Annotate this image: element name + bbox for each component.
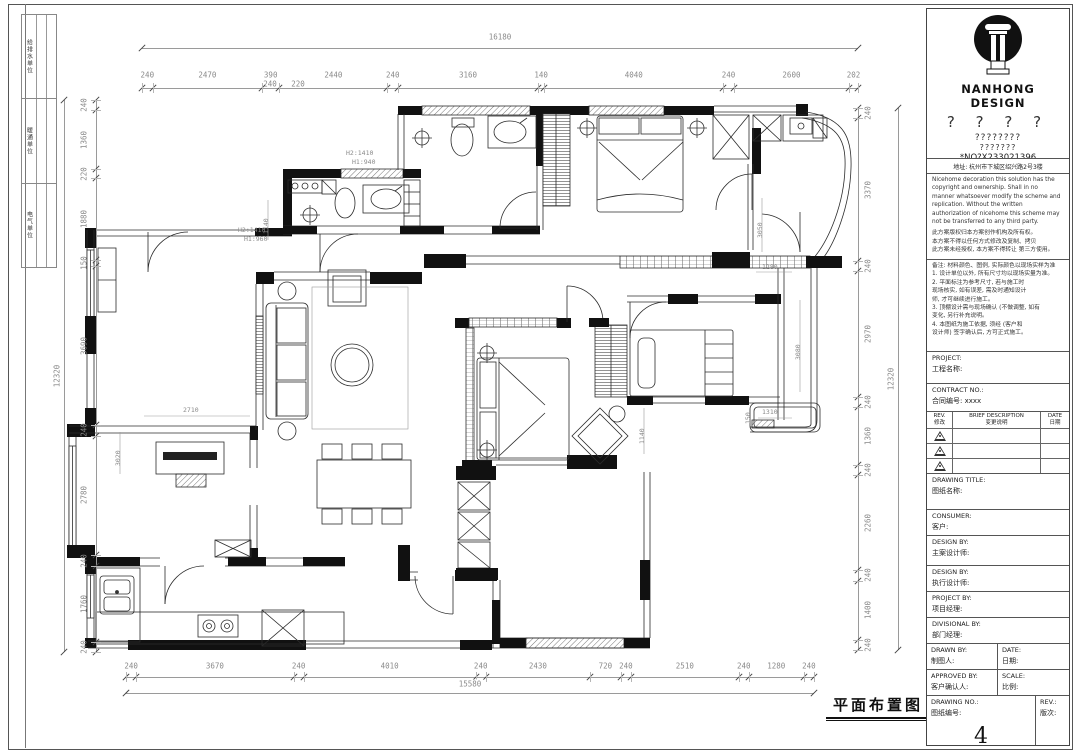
copyright-en: Nicehome decoration this solution has th… [932,176,1064,226]
dim-label [749,672,750,682]
logo-section: NANHONG DESIGN ? ? ? ? ???????? ??????? … [927,9,1069,159]
dim-label: 240 [80,640,89,654]
divisional-by-section: DIVISIONAL BY: 部门经理: [927,618,1069,644]
dim-label: 240 [80,424,89,438]
dim-label [486,672,487,682]
approved-scale-section: APPROVED BY: 客户确认人: SCALE: 比例: [927,670,1069,696]
copyright-section: Nicehome decoration this solution has th… [927,174,1069,260]
dim-label [398,83,399,93]
dim-label: 240 [722,71,736,80]
dim-label: 240 [864,463,873,477]
interior-dim: 1140 [638,428,646,444]
dim-label [853,650,863,651]
address-row: 地址: 杭州市下城区绍兴路2号3楼 [927,159,1069,174]
dim-label [294,672,295,682]
dim-label: 240 [864,638,873,652]
dim-label: 3690 [80,337,89,355]
dim-label: 2780 [80,486,89,504]
dim-label: 1360 [864,427,873,445]
dim-label [853,108,863,109]
dim-label [64,100,65,652]
project-section: PROJECT: 工程名称: [927,352,1069,384]
drawing-sheet: 给排水单位 暖通单位 电气单位 [0,0,1080,753]
dim-label: 2440 [324,71,342,80]
design-by-section: DESIGN BY: 主案设计师: [927,536,1069,566]
dim-label [91,555,101,556]
drawing-number: 4 [931,724,1031,745]
dim-label: 12320 [53,363,62,390]
company-cn-fallback: ? ? ? ? [932,113,1064,131]
plan-title-underline [826,717,930,719]
dim-label [858,83,859,93]
dim-label: 1880 [80,210,89,228]
dim-label [91,425,101,426]
interior-dim: 150 [744,412,752,424]
dim-label [279,83,280,93]
nanhong-logo-icon [967,13,1029,77]
dim-label [387,83,388,93]
interior-dim: 2710 [183,406,199,414]
plan-title: 平面布置图 [826,694,930,721]
dim-label [853,570,863,571]
dim-label [91,566,101,567]
dim-label: 3160 [459,71,477,80]
dim-label [853,261,863,262]
consumer-section: CONSUMER: 客户: [927,510,1069,536]
dim-label: 2470 [198,71,216,80]
interior-dim: 3080 [794,344,802,360]
dim-label [142,83,143,93]
dim-label [853,397,863,398]
dim-label [853,465,863,466]
dim-label: 240 [141,71,155,80]
dim-label [723,83,724,93]
dim-label: 240 [619,662,633,671]
revision-triangle-icon [934,446,946,456]
dim-label: 1760 [80,595,89,613]
title-block: NANHONG DESIGN ? ? ? ? ???????? ??????? … [926,8,1070,746]
dim-label [126,672,127,682]
dim-label [898,108,899,650]
dim-label [544,83,545,93]
dim-label [153,83,154,93]
design-by-2-section: DESIGN BY: 执行设计师: [927,566,1069,592]
drawing-title-section: DRAWING TITLE: 图纸名称: [927,474,1069,510]
plan-title-text: 平面布置图 [826,694,930,715]
interior-dim: 1140 [262,218,270,234]
dim-label [590,672,591,682]
height-note: H1:940 [352,158,375,166]
dim-label: 3670 [206,662,224,671]
dim-label: 390 [264,71,278,80]
dim-label [853,118,863,119]
dim-label [126,693,814,694]
dim-label [142,88,858,89]
floor-plan-drawing [0,0,1080,753]
dim-label [91,266,101,267]
revision-row [927,444,1069,459]
dim-label [304,672,305,682]
dim-label: 202 [847,71,861,80]
dim-label: 240 [864,395,873,409]
revision-header-row: REV.修改 BRIEF DESCRIPTION变更说明 DATE日期 [927,412,1069,429]
height-note: H2:1410 [346,149,373,157]
notes-text: 备注: 材料颜色、图例, 实际颜色以现场实样为准1. 设计单位以外, 所有尺寸均… [932,262,1064,338]
dim-label: 2510 [676,662,694,671]
dim-label: 150 [80,256,89,270]
dim-label: 240 [292,662,306,671]
dim-label: 240 [80,98,89,112]
dim-label [91,436,101,437]
dim-label [849,83,850,93]
revision-table: REV.修改 BRIEF DESCRIPTION变更说明 DATE日期 [927,412,1069,474]
revision-row [927,459,1069,473]
dim-label [853,475,863,476]
dim-label: 2600 [782,71,800,80]
project-by-section: PROJECT BY: 项目经理: [927,592,1069,618]
dim-label: 240 [737,662,751,671]
dim-label: 240 [80,554,89,568]
drawn-date-section: DRAWN BY: 制图人: DATE: 日期: [927,644,1069,670]
drawing-no-section: DRAWING NO.: 图纸编号: 4 REV.: 版次: [927,696,1069,745]
dim-label [538,83,539,93]
interior-dim: 1310 [762,408,778,416]
dim-label: 15580 [457,680,484,689]
dim-label: 16180 [487,33,514,42]
dim-label [262,83,263,93]
dim-label: 240 [124,662,138,671]
revision-triangle-icon [934,461,946,471]
notes-section: 备注: 材料颜色、图例, 实际颜色以现场实样为准1. 设计单位以外, 所有尺寸均… [927,260,1069,352]
dim-label [91,642,101,643]
dim-label [804,672,805,682]
dim-label: 1280 [767,662,785,671]
dim-label: 240 [864,106,873,120]
dim-label [91,110,101,111]
dim-label [853,581,863,582]
dim-label [853,407,863,408]
dim-label: 220 [80,167,89,181]
dim-label [91,169,101,170]
height-note: H1:960 [244,235,267,243]
dim-label [814,672,815,682]
dim-label [621,672,622,682]
dim-label: 3370 [864,180,873,198]
dim-label [853,640,863,641]
dim-label: 4010 [381,662,399,671]
dim-label [91,178,101,179]
dim-label: 240 [474,662,488,671]
dim-label: 140 [534,71,548,80]
dim-label [96,100,97,652]
dim-label [91,100,101,101]
dim-label [142,48,858,49]
dim-label [631,672,632,682]
contract-section: CONTRACT NO.: 合同编号: xxxx [927,384,1069,412]
dim-label: 720 [599,662,613,671]
dim-label: 12320 [887,366,896,393]
dim-label: 1400 [864,601,873,619]
interior-dim: 3020 [114,450,122,466]
dim-label: 2970 [864,325,873,343]
copyright-cn: 此方案版权归本方案创作机构及所有权。本方案不得以任何方式修改及复制、拷贝此方案未… [932,229,1064,254]
dim-label [734,83,735,93]
revision-row [927,429,1069,444]
dim-label [739,672,740,682]
dim-label: 2430 [529,662,547,671]
interior-dim: 3050 [756,222,764,238]
dim-label: 1360 [80,131,89,149]
interior-dim: 1280 [762,263,778,271]
dim-label [126,677,814,678]
dim-label: 240 [864,569,873,583]
dim-label [853,271,863,272]
dim-label: 4040 [625,71,643,80]
dim-label: 240 [864,259,873,273]
dim-label [136,672,137,682]
revision-triangle-icon [934,431,946,441]
company-name: NANHONG DESIGN [932,82,1064,110]
dim-label [91,652,101,653]
dim-label: 2260 [864,514,873,532]
dim-label: 240 [386,71,400,80]
dim-label: 240 [802,662,816,671]
dim-label [91,260,101,261]
